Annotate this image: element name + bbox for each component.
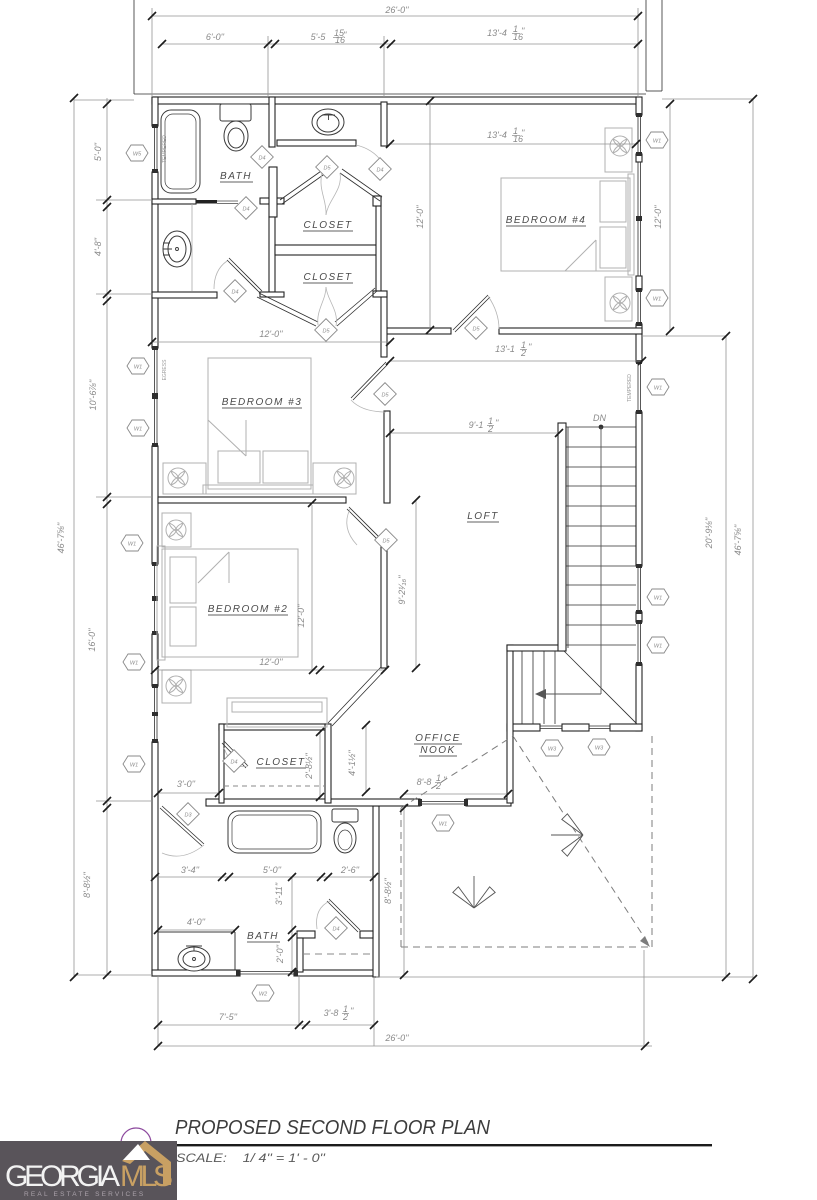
svg-text:W3: W3 [595,746,604,752]
svg-text:20'-9⅛'': 20'-9⅛'' [704,517,714,549]
svg-text:16'-0'': 16'-0'' [87,628,97,651]
svg-text:4'-1½'': 4'-1½'' [347,750,357,776]
svg-text:4'-0'': 4'-0'' [187,917,205,927]
svg-text:W1: W1 [134,365,142,371]
svg-text:12'-0'': 12'-0'' [653,205,663,228]
svg-text:W1: W1 [130,661,138,667]
svg-text:12'-0'': 12'-0'' [296,604,306,627]
svg-text:MLS: MLS [120,1160,173,1193]
svg-text:PROPOSED SECOND FLOOR PLAN: PROPOSED SECOND FLOOR PLAN [175,1117,491,1139]
svg-text:3'-11'': 3'-11'' [274,882,284,905]
svg-text:3'-8: 3'-8 [324,1008,339,1018]
svg-text:W1: W1 [130,763,138,769]
svg-text:3'-0'': 3'-0'' [177,779,195,789]
svg-text:12'-0'': 12'-0'' [259,329,282,339]
svg-text:W1: W1 [654,644,662,650]
svg-text:D5: D5 [472,327,480,333]
svg-text:TEMPERED: TEMPERED [162,135,168,163]
svg-text:13'-4: 13'-4 [487,28,507,38]
svg-text:CLOSET: CLOSET [303,220,352,231]
svg-text:3'-4'': 3'-4'' [181,865,199,875]
svg-text:W2: W2 [259,992,267,998]
svg-text:2: 2 [342,1012,348,1022]
svg-text:D5: D5 [382,539,390,545]
svg-text:13'-4: 13'-4 [487,130,507,140]
svg-text:W1: W1 [439,822,447,828]
svg-text:W1: W1 [653,139,661,145]
svg-text:8'-8: 8'-8 [417,777,432,787]
svg-text:2: 2 [487,424,493,434]
svg-text:46'-7⅝'': 46'-7⅝'' [56,522,66,553]
svg-text:CLOSET: CLOSET [256,757,305,768]
svg-text:4'-8'': 4'-8'' [93,238,103,256]
svg-text:5'-0'': 5'-0'' [263,865,281,875]
svg-text:2: 2 [520,348,526,358]
svg-text:LOFT: LOFT [467,511,499,522]
svg-text:D3: D3 [184,813,192,819]
svg-text:BEDROOM #4: BEDROOM #4 [506,215,587,226]
svg-text:BATH: BATH [220,171,252,182]
svg-text:DN: DN [593,413,606,423]
svg-text:W1: W1 [134,427,142,433]
svg-text:9'-1: 9'-1 [469,420,484,430]
svg-text:D4: D4 [376,168,383,174]
svg-text:D4: D4 [230,760,237,766]
svg-text:10'-6⅞'': 10'-6⅞'' [88,379,98,410]
svg-text:W1: W1 [654,386,662,392]
svg-text:'': '' [350,1006,354,1016]
svg-text:D4: D4 [258,156,265,162]
svg-text:7'-5'': 7'-5'' [219,1012,237,1022]
svg-text:SCALE: 1/ 4'' = 1' - 0'': SCALE: 1/ 4'' = 1' - 0'' [176,1151,326,1165]
svg-text:CLOSET: CLOSET [303,272,352,283]
svg-text:'': '' [443,775,447,785]
svg-text:2'-6'': 2'-6'' [340,865,359,875]
svg-text:TEMPERED: TEMPERED [627,374,633,402]
svg-text:'': '' [521,128,525,138]
svg-text:D5: D5 [323,166,331,172]
svg-text:BEDROOM #3: BEDROOM #3 [222,397,303,408]
svg-text:9'-2¹⁄₁₆'': 9'-2¹⁄₁₆'' [397,575,407,604]
svg-text:NOOK: NOOK [420,745,455,756]
svg-text:6'-0'': 6'-0'' [206,32,224,42]
svg-text:D5: D5 [322,329,330,335]
svg-text:W1: W1 [653,297,661,303]
svg-text:W3: W3 [548,747,557,753]
svg-text:26'-0'': 26'-0'' [384,5,408,15]
svg-text:8'-8½'': 8'-8½'' [383,878,393,904]
svg-text:W1: W1 [654,596,662,602]
svg-text:2'-0'': 2'-0'' [275,945,285,964]
svg-text:5'-0'': 5'-0'' [93,143,103,161]
svg-text:EGRESS: EGRESS [162,359,168,381]
svg-text:'': '' [521,26,525,36]
svg-text:12'-0'': 12'-0'' [415,205,425,228]
svg-text:OFFICE: OFFICE [415,733,461,744]
svg-text:'': '' [343,30,347,40]
svg-text:'': '' [495,418,499,428]
svg-text:12'-0'': 12'-0'' [259,657,282,667]
svg-text:D4: D4 [332,927,339,933]
svg-text:D5: D5 [381,393,389,399]
svg-text:BATH: BATH [247,931,279,942]
svg-text:13'-1: 13'-1 [495,344,515,354]
svg-text:GEORGIA: GEORGIA [5,1160,120,1193]
svg-text:5'-5: 5'-5 [311,32,327,42]
svg-text:W5: W5 [133,152,142,158]
svg-text:26'-0'': 26'-0'' [384,1033,408,1043]
svg-text:BEDROOM #2: BEDROOM #2 [208,604,289,615]
svg-text:2: 2 [435,781,441,791]
svg-text:D4: D4 [231,290,238,296]
svg-text:D4: D4 [242,207,249,213]
svg-text:'': '' [528,342,532,352]
svg-text:8'-8½'': 8'-8½'' [82,872,92,898]
svg-text:W1: W1 [128,542,136,548]
svg-text:46'-7⅝'': 46'-7⅝'' [733,524,743,555]
svg-text:REAL ESTATE SERVICES: REAL ESTATE SERVICES [24,1191,145,1198]
